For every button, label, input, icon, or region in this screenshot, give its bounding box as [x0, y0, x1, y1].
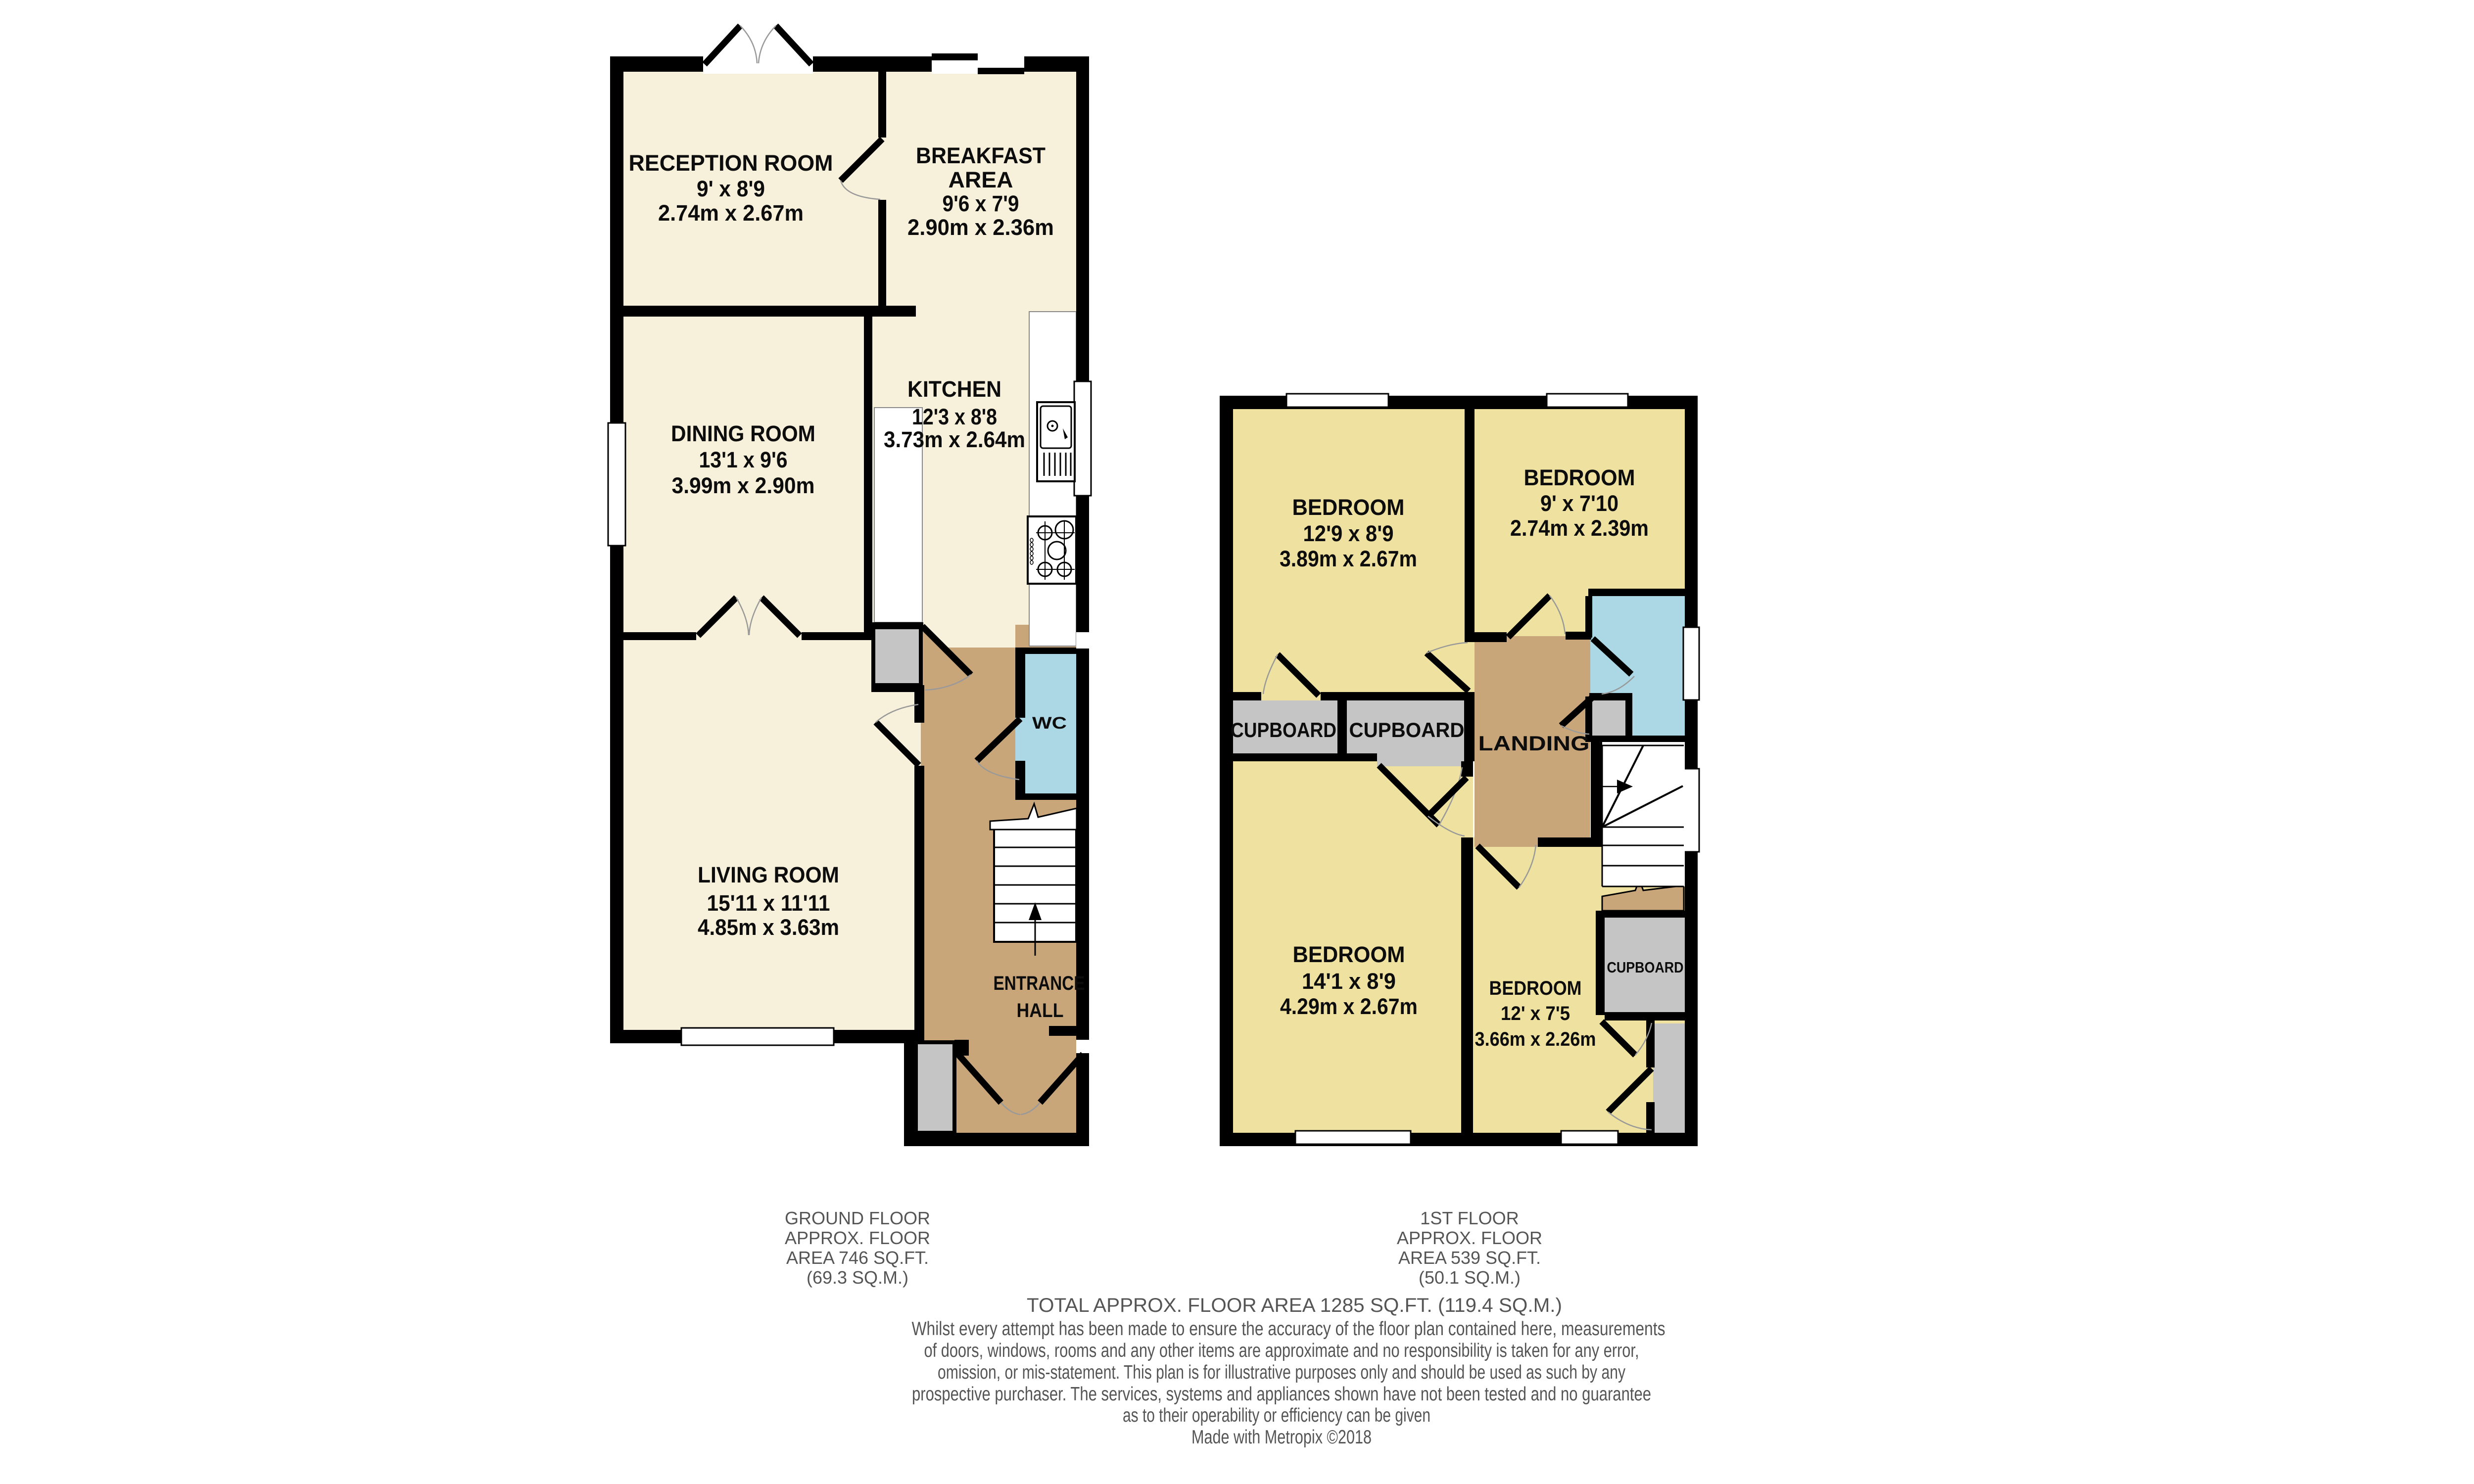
svg-text:CUPBOARD: CUPBOARD	[1349, 718, 1465, 742]
svg-text:GROUND FLOOR: GROUND FLOOR	[785, 1208, 930, 1228]
svg-text:15'11 x 11'11: 15'11 x 11'11	[707, 890, 830, 916]
svg-text:LANDING: LANDING	[1478, 732, 1590, 755]
svg-text:2.74m x 2.67m: 2.74m x 2.67m	[658, 200, 804, 226]
svg-text:BEDROOM: BEDROOM	[1293, 942, 1405, 967]
svg-text:BEDROOM: BEDROOM	[1292, 495, 1405, 520]
svg-text:omission, or mis-statement. Th: omission, or mis-statement. This plan is…	[938, 1362, 1625, 1383]
svg-text:ENTRANCE: ENTRANCE	[994, 973, 1085, 994]
svg-text:KITCHEN: KITCHEN	[907, 376, 1001, 402]
svg-text:of doors, windows, rooms and a: of doors, windows, rooms and any other i…	[924, 1340, 1639, 1361]
svg-text:RECEPTION ROOM: RECEPTION ROOM	[629, 150, 833, 176]
svg-text:9' x 7'10: 9' x 7'10	[1540, 491, 1618, 516]
svg-text:2.74m x 2.39m: 2.74m x 2.39m	[1510, 515, 1649, 541]
svg-text:AREA: AREA	[949, 167, 1013, 192]
svg-text:3.73m x 2.64m: 3.73m x 2.64m	[884, 427, 1025, 452]
svg-text:APPROX. FLOOR: APPROX. FLOOR	[785, 1228, 930, 1248]
svg-text:3.66m x 2.26m: 3.66m x 2.26m	[1475, 1028, 1596, 1050]
svg-text:DINING ROOM: DINING ROOM	[671, 421, 815, 446]
svg-text:BEDROOM: BEDROOM	[1524, 465, 1635, 490]
svg-text:Whilst every attempt has been: Whilst every attempt has been made to en…	[912, 1318, 1665, 1340]
svg-text:9'6 x 7'9: 9'6 x 7'9	[943, 191, 1019, 216]
svg-text:12'3 x 8'8: 12'3 x 8'8	[912, 404, 997, 429]
svg-text:2.90m x 2.36m: 2.90m x 2.36m	[907, 215, 1054, 240]
svg-text:Made with Metropix ©2018: Made with Metropix ©2018	[1191, 1427, 1372, 1448]
svg-text:as to their operability or eff: as to their operability or efficiency ca…	[1123, 1405, 1430, 1426]
svg-text:BREAKFAST: BREAKFAST	[916, 143, 1046, 168]
svg-text:APPROX. FLOOR: APPROX. FLOOR	[1397, 1228, 1542, 1248]
svg-text:3.89m x 2.67m: 3.89m x 2.67m	[1280, 546, 1417, 571]
svg-text:12' x 7'5: 12' x 7'5	[1501, 1003, 1570, 1024]
svg-text:9' x 8'9: 9' x 8'9	[697, 176, 765, 201]
svg-text:1ST FLOOR: 1ST FLOOR	[1420, 1208, 1519, 1228]
svg-text:12'9 x 8'9: 12'9 x 8'9	[1303, 521, 1394, 546]
svg-text:(69.3 SQ.M.): (69.3 SQ.M.)	[807, 1267, 908, 1288]
svg-text:14'1 x 8'9: 14'1 x 8'9	[1302, 969, 1396, 994]
svg-text:BEDROOM: BEDROOM	[1489, 977, 1582, 999]
svg-text:LIVING ROOM: LIVING ROOM	[698, 862, 839, 887]
svg-text:TOTAL APPROX. FLOOR AREA 1285: TOTAL APPROX. FLOOR AREA 1285 SQ.FT. (11…	[1027, 1295, 1562, 1316]
svg-text:4.85m x 3.63m: 4.85m x 3.63m	[698, 915, 839, 940]
svg-text:AREA 539 SQ.FT.: AREA 539 SQ.FT.	[1398, 1248, 1541, 1268]
svg-text:4.29m x 2.67m: 4.29m x 2.67m	[1280, 994, 1418, 1019]
svg-text:CUPBOARD: CUPBOARD	[1231, 718, 1336, 742]
svg-text:prospective purchaser. The ser: prospective purchaser. The services, sys…	[912, 1384, 1651, 1405]
svg-text:AREA 746 SQ.FT.: AREA 746 SQ.FT.	[786, 1248, 929, 1268]
svg-text:13'1 x 9'6: 13'1 x 9'6	[699, 447, 788, 472]
svg-text:3.99m x 2.90m: 3.99m x 2.90m	[672, 473, 815, 498]
svg-text:CUPBOARD: CUPBOARD	[1607, 959, 1684, 976]
svg-text:HALL: HALL	[1017, 1000, 1064, 1021]
svg-text:WC: WC	[1032, 714, 1067, 733]
svg-text:(50.1 SQ.M.): (50.1 SQ.M.)	[1419, 1267, 1521, 1288]
